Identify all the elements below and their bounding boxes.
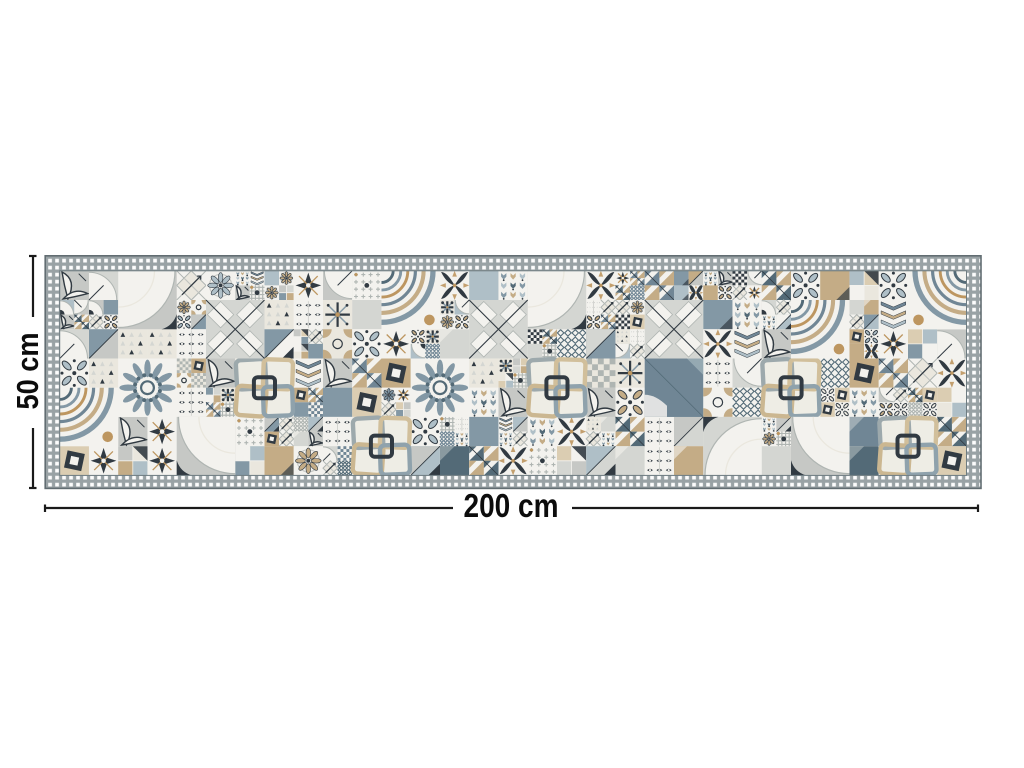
- svg-text:200 cm: 200 cm: [464, 487, 559, 524]
- svg-text:50 cm: 50 cm: [10, 333, 45, 410]
